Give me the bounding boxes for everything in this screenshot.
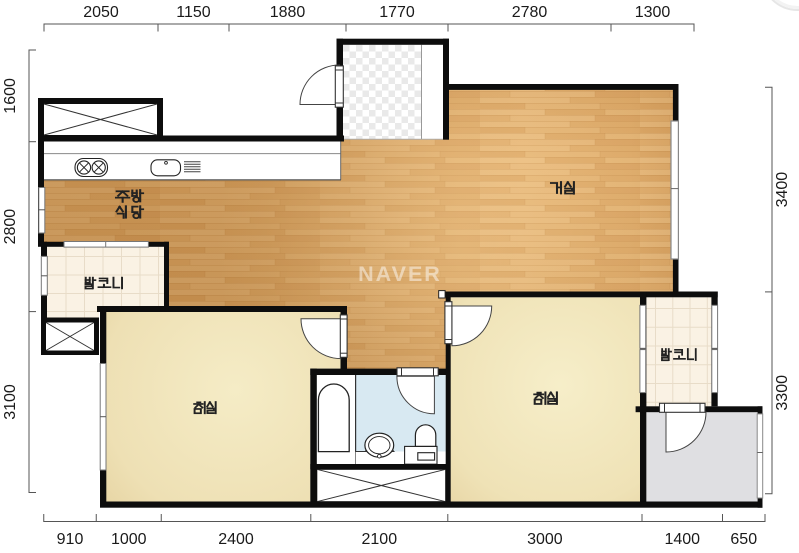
svg-text:1600: 1600 [2, 78, 19, 114]
svg-text:650: 650 [730, 531, 757, 548]
svg-text:2400: 2400 [218, 531, 254, 548]
svg-text:3100: 3100 [2, 384, 19, 420]
svg-text:NAVER: NAVER [358, 262, 442, 286]
svg-text:1300: 1300 [635, 4, 671, 21]
svg-text:3000: 3000 [527, 531, 563, 548]
svg-text:1150: 1150 [176, 4, 211, 21]
svg-text:1400: 1400 [664, 531, 700, 548]
svg-text:1000: 1000 [111, 531, 147, 548]
svg-text:3300: 3300 [774, 375, 791, 411]
svg-text:3400: 3400 [774, 172, 791, 208]
svg-text:2100: 2100 [362, 531, 398, 548]
svg-text:2050: 2050 [83, 4, 119, 21]
svg-text:2800: 2800 [2, 209, 19, 245]
svg-text:910: 910 [57, 531, 84, 548]
svg-text:2780: 2780 [512, 4, 548, 21]
svg-text:1770: 1770 [379, 4, 415, 21]
svg-text:1880: 1880 [270, 4, 306, 21]
